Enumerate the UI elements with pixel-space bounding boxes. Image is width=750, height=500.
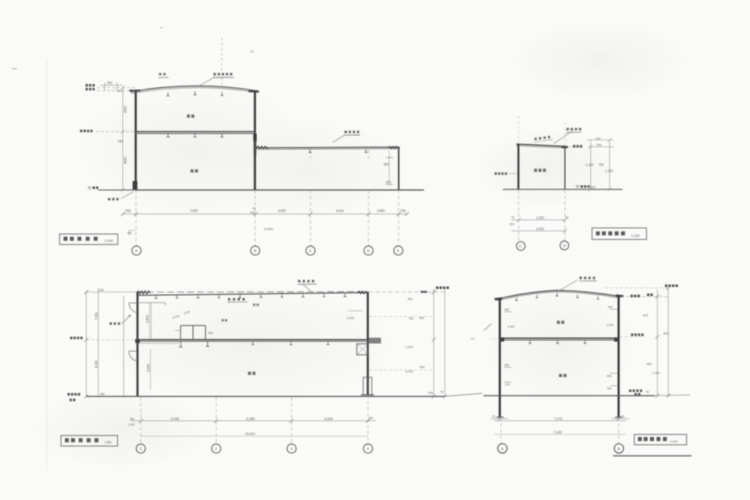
svg-text:2450: 2450 xyxy=(377,209,385,213)
svg-text:1,910: 1,910 xyxy=(508,324,515,328)
svg-text:50: 50 xyxy=(566,216,570,220)
svg-text:750: 750 xyxy=(107,81,113,85)
svg-text:750: 750 xyxy=(409,316,414,320)
svg-text:650: 650 xyxy=(664,331,669,335)
svg-text:C: C xyxy=(309,248,312,253)
svg-text:E: E xyxy=(397,248,400,253)
svg-text:21,900: 21,900 xyxy=(264,227,273,231)
svg-text:2: 2 xyxy=(215,446,218,451)
svg-text:7150: 7150 xyxy=(95,312,99,320)
svg-text:750: 750 xyxy=(607,387,612,391)
svg-text:150: 150 xyxy=(510,222,515,226)
svg-text:19,410: 19,410 xyxy=(245,432,255,436)
svg-text:750: 750 xyxy=(127,231,132,235)
svg-text:7150: 7150 xyxy=(190,209,198,213)
svg-text:450: 450 xyxy=(408,297,413,301)
svg-text:750: 750 xyxy=(599,163,605,167)
svg-text:1:100: 1:100 xyxy=(670,439,678,443)
svg-text:A: A xyxy=(135,248,138,253)
svg-text:6,350: 6,350 xyxy=(247,417,255,421)
svg-text:150: 150 xyxy=(591,185,596,189)
svg-text:C': C' xyxy=(519,245,523,249)
svg-text:6,000: 6,000 xyxy=(171,417,179,421)
svg-text:3,850: 3,850 xyxy=(146,364,150,372)
svg-text:75: 75 xyxy=(492,415,496,419)
svg-text:875: 875 xyxy=(643,313,648,317)
svg-text:750: 750 xyxy=(428,391,433,395)
svg-text:1,200: 1,200 xyxy=(128,422,135,426)
svg-text:240: 240 xyxy=(117,89,122,93)
svg-text:3: 3 xyxy=(290,446,293,451)
svg-text:7,270: 7,270 xyxy=(554,417,562,421)
svg-text:B: B xyxy=(254,248,257,253)
svg-text:1,150: 1,150 xyxy=(605,169,613,173)
svg-text:A: A xyxy=(501,446,504,451)
svg-text:1:50: 1:50 xyxy=(105,441,112,445)
svg-text:450: 450 xyxy=(384,163,390,167)
svg-text:790: 790 xyxy=(118,140,124,144)
svg-text:450: 450 xyxy=(505,308,510,312)
svg-text:750: 750 xyxy=(400,209,406,213)
svg-text:D: D xyxy=(367,248,370,253)
svg-text:200: 200 xyxy=(99,288,104,292)
svg-text:1,750: 1,750 xyxy=(652,371,660,375)
svg-text:300: 300 xyxy=(130,417,135,421)
svg-text:1:100: 1:100 xyxy=(104,239,113,243)
svg-text:1,150: 1,150 xyxy=(347,316,355,320)
svg-text:75: 75 xyxy=(646,390,650,394)
svg-text:600: 600 xyxy=(386,181,392,185)
svg-text:3950: 3950 xyxy=(124,105,128,113)
svg-text:175: 175 xyxy=(505,383,510,387)
svg-text:450: 450 xyxy=(505,363,510,367)
svg-text:1,250: 1,250 xyxy=(406,345,414,349)
svg-text:4: 4 xyxy=(367,446,370,451)
svg-text:450: 450 xyxy=(647,362,652,366)
svg-text:6150: 6150 xyxy=(95,360,99,368)
svg-text:4150: 4150 xyxy=(336,209,344,213)
svg-text:200: 200 xyxy=(369,416,374,420)
svg-text:450: 450 xyxy=(420,365,425,369)
svg-text:500: 500 xyxy=(607,374,612,378)
svg-text:2,850: 2,850 xyxy=(146,315,150,323)
svg-text:250: 250 xyxy=(208,331,213,335)
svg-text:75: 75 xyxy=(622,415,626,419)
svg-text:120: 120 xyxy=(596,136,601,140)
svg-text:2,400: 2,400 xyxy=(536,227,544,231)
svg-text:1,930: 1,930 xyxy=(536,216,544,220)
svg-text:6,000: 6,000 xyxy=(325,417,333,421)
svg-text:750: 750 xyxy=(125,209,131,213)
svg-text:150: 150 xyxy=(250,210,255,214)
svg-text:7,420: 7,420 xyxy=(554,430,562,434)
svg-text:B: B xyxy=(617,446,620,451)
svg-text:450: 450 xyxy=(608,305,613,309)
svg-text:D': D' xyxy=(563,244,567,248)
svg-text:300: 300 xyxy=(597,143,602,147)
svg-text:75: 75 xyxy=(440,390,444,394)
svg-text:75: 75 xyxy=(511,216,515,220)
svg-text:1,910: 1,910 xyxy=(607,323,614,327)
svg-text:1:100: 1:100 xyxy=(631,234,640,238)
svg-text:2,150: 2,150 xyxy=(586,163,594,167)
svg-text:4150: 4150 xyxy=(278,209,286,213)
svg-text:450: 450 xyxy=(100,392,105,396)
svg-text:4650: 4650 xyxy=(124,156,128,164)
